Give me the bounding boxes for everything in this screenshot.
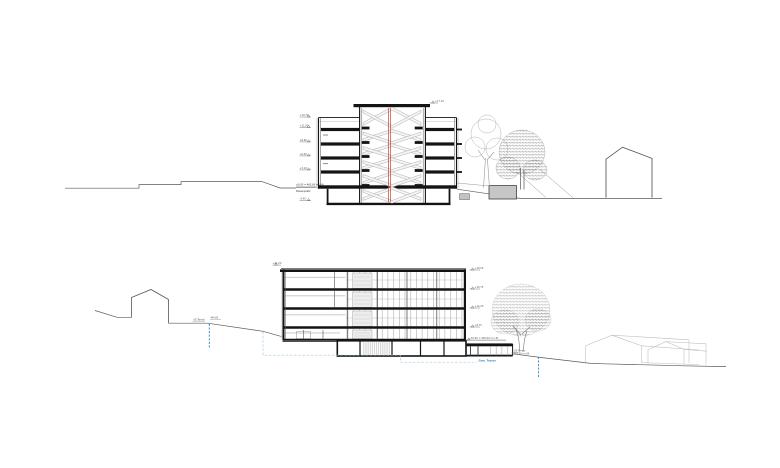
- sections-drawing-svg: +14.70 +11.80 +8.90 +6.00 +3.10 -3.40 ±0…: [0, 0, 780, 468]
- level-text: +12.25: [475, 305, 484, 308]
- level-text: +21.00: [273, 262, 282, 265]
- level-text: -3.40: [300, 198, 307, 201]
- terrain-value: 464.60: [211, 317, 219, 320]
- neighbor-house-top: [606, 147, 652, 197]
- wall-shading-right: [457, 118, 459, 189]
- bottom-section-drawing: OK Terrain 464.60: [95, 262, 726, 378]
- tower-roof-marker: +17.10: [430, 100, 445, 103]
- top-section-drawing: +14.70 +11.80 +8.90 +6.00 +3.10 -3.40 ±0…: [65, 100, 662, 204]
- level-text: +14.70: [300, 114, 309, 117]
- tree-dense: [496, 130, 547, 190]
- level-markers-right: +19.25 +15.75 +12.25 +8.75: [470, 267, 484, 327]
- wireframe-sheds: [586, 335, 708, 365]
- wall-shading: [281, 271, 283, 340]
- terrain-label: OK Terrain: [194, 318, 206, 321]
- level-text: +3.10: [300, 167, 308, 170]
- terrain-line-left: [95, 311, 283, 337]
- terrain-line-left: [65, 182, 296, 189]
- ground-label: Pausenplatz: [296, 190, 311, 193]
- stair-flights: [363, 107, 421, 203]
- terrain-line-right: [457, 189, 662, 198]
- terrain-marker-left: OK Terrain 464.60: [193, 317, 222, 349]
- roof-marker-left: +21.00: [273, 262, 282, 265]
- base-block: [460, 194, 470, 200]
- level-text: +11.80: [300, 124, 309, 127]
- neighbor-house-bottom: [132, 290, 169, 324]
- level-text: +17.10: [435, 100, 444, 103]
- level-text: +8.90: [300, 139, 308, 142]
- datum-marker-right: ±0.00 = 465.00 m ü.M.: [466, 337, 506, 340]
- wall-shading-left: [316, 118, 318, 189]
- architectural-sections-sheet: +14.70 +11.80 +8.90 +6.00 +3.10 -3.40 ±0…: [0, 0, 780, 468]
- level-text: +8.75: [475, 324, 483, 327]
- level-text: +6.00: [300, 153, 308, 156]
- retaining-garage: [489, 186, 517, 199]
- utility-label: Gew. Trasse: [479, 359, 497, 363]
- level-text: +15.75: [475, 286, 484, 289]
- tree-large: [491, 284, 551, 352]
- level-text: +19.25: [475, 267, 484, 270]
- datum-text: ±0.00 = 465.00 m ü.M.: [471, 337, 499, 340]
- annex: [466, 343, 513, 355]
- basement: [337, 341, 466, 356]
- datum-text: ±0.00 = 465.60 m ü.M.: [296, 184, 324, 187]
